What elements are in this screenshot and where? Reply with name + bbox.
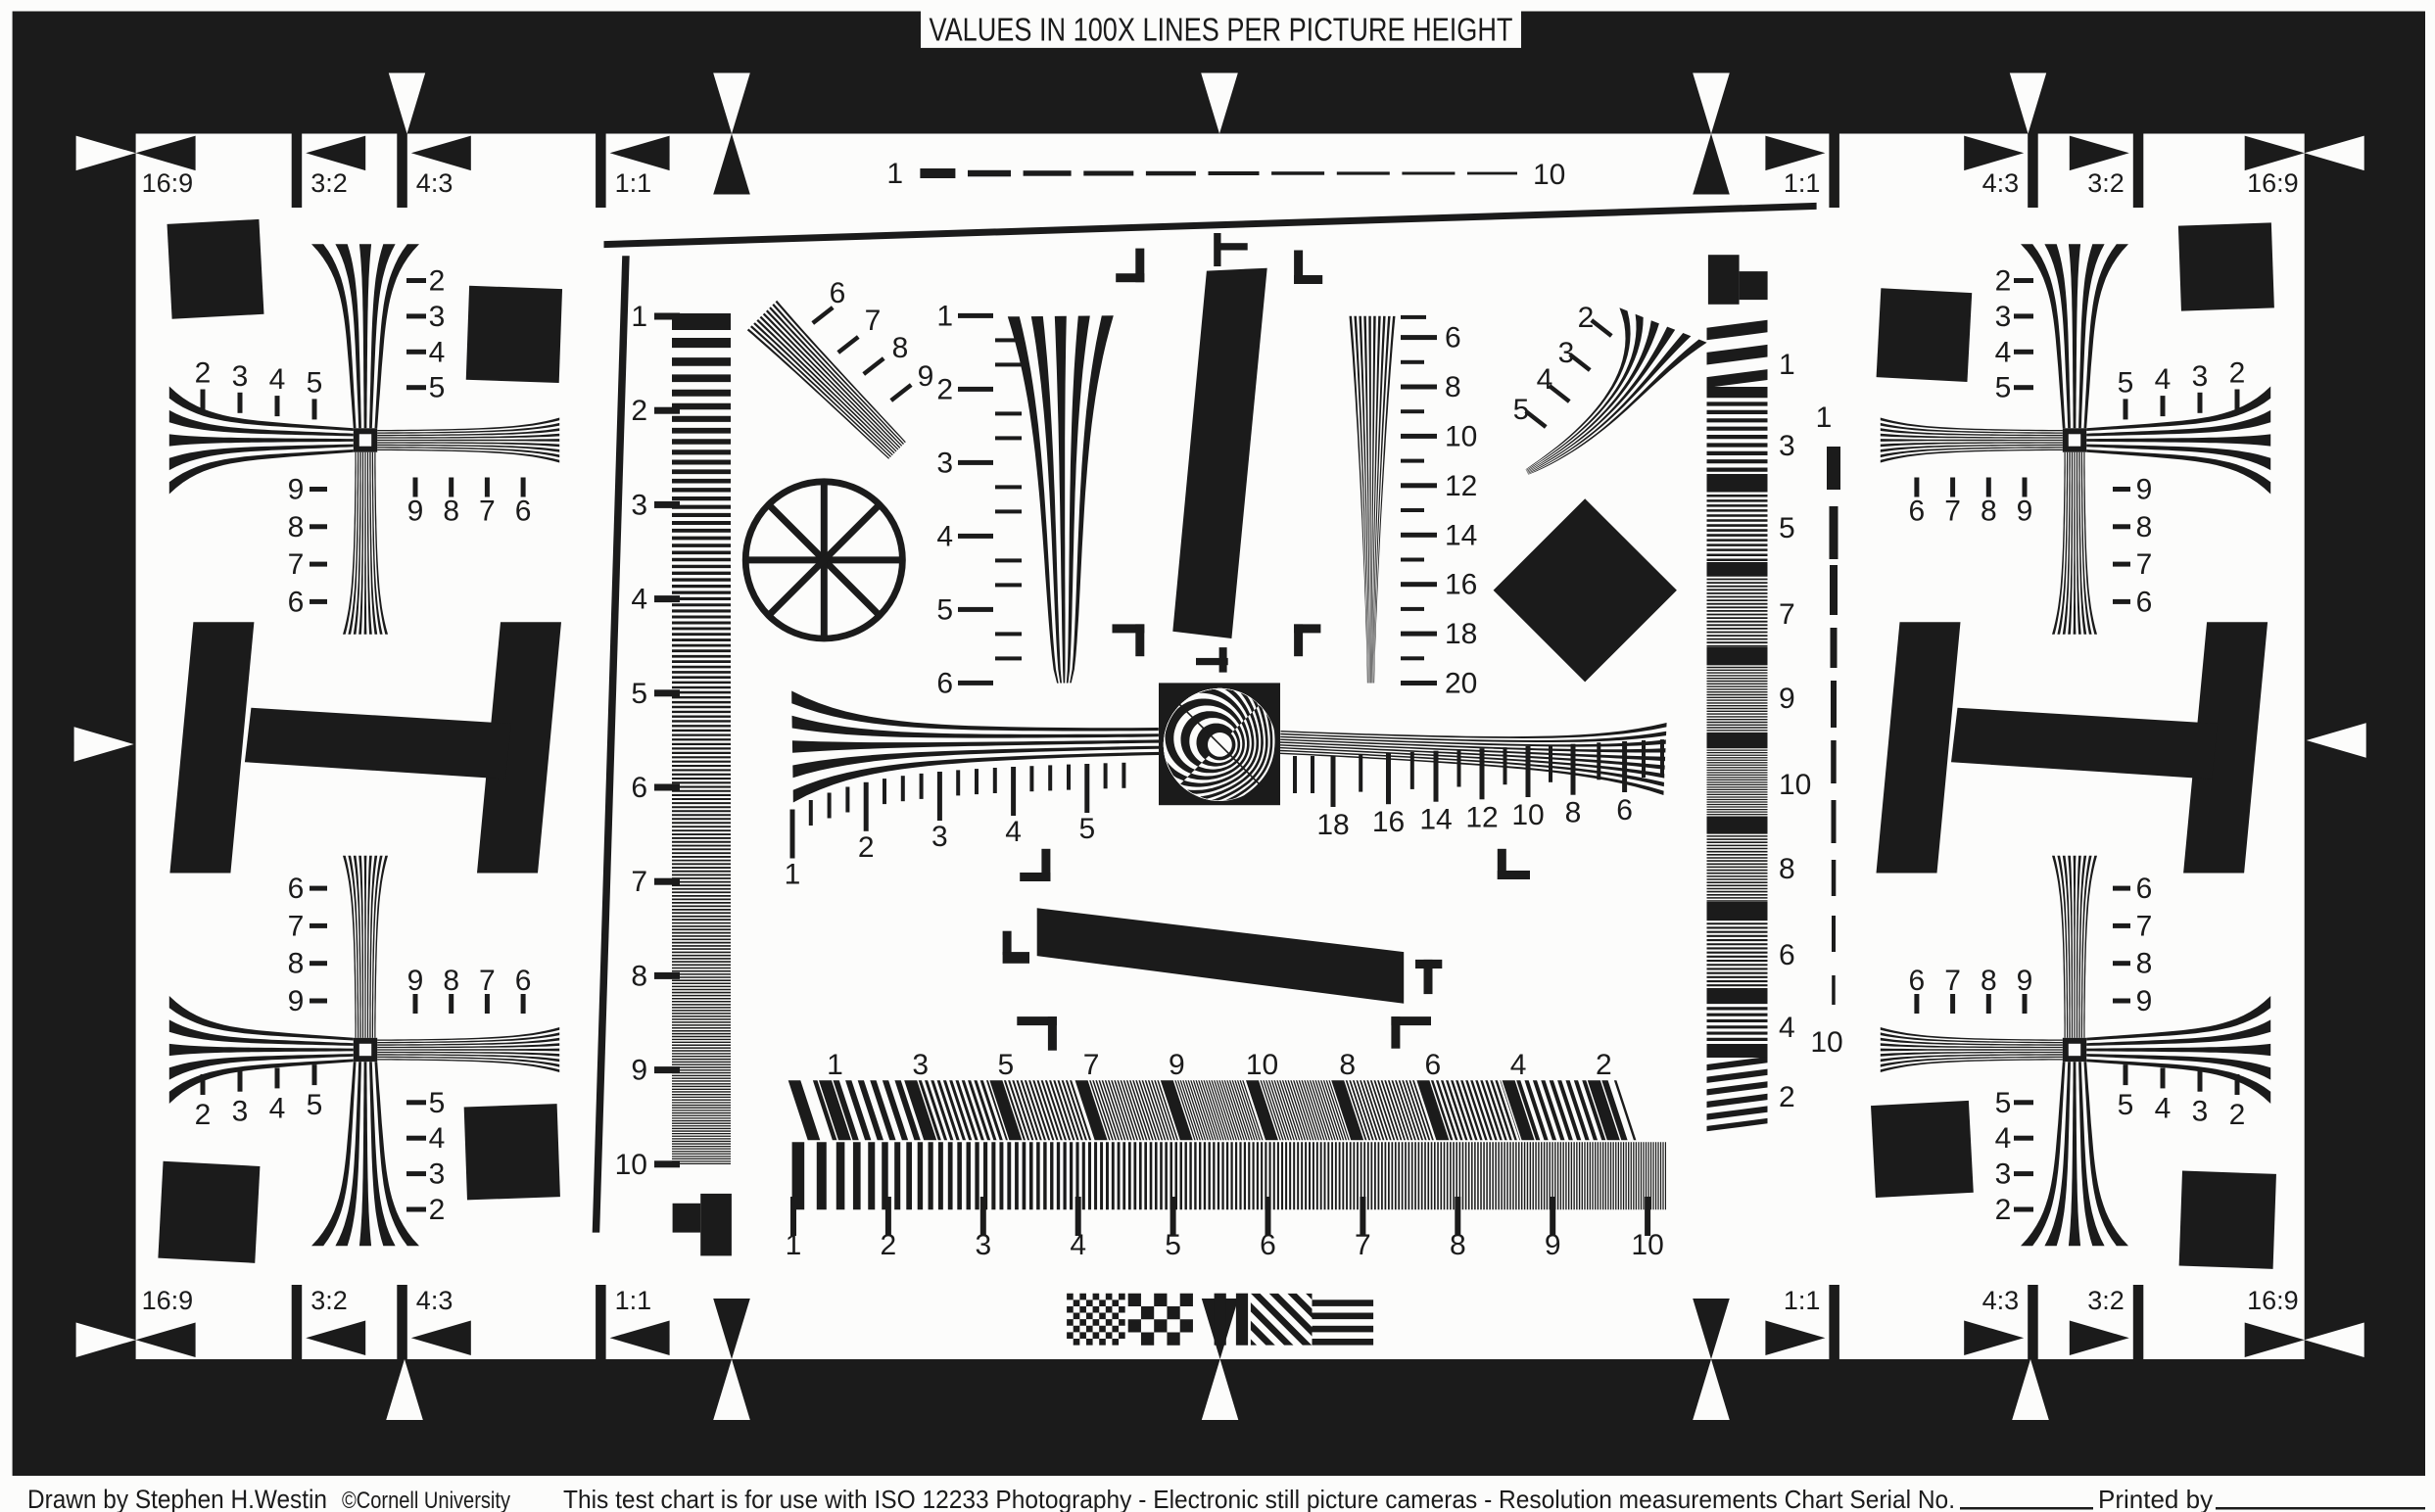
svg-text:4: 4 bbox=[2155, 1092, 2172, 1124]
svg-text:5: 5 bbox=[936, 593, 953, 626]
svg-text:2: 2 bbox=[631, 395, 647, 427]
svg-text:4:3: 4:3 bbox=[1982, 1286, 2020, 1315]
svg-text:4:3: 4:3 bbox=[416, 168, 454, 198]
svg-text:3: 3 bbox=[1558, 337, 1575, 369]
svg-text:10: 10 bbox=[1631, 1229, 1663, 1261]
svg-text:9: 9 bbox=[1779, 683, 1795, 715]
svg-text:3: 3 bbox=[936, 447, 953, 479]
svg-text:9: 9 bbox=[2017, 965, 2033, 997]
svg-text:4: 4 bbox=[936, 520, 953, 552]
svg-text:6: 6 bbox=[1616, 794, 1633, 827]
svg-text:14: 14 bbox=[1445, 519, 1477, 551]
svg-text:10: 10 bbox=[1779, 769, 1811, 801]
svg-text:1: 1 bbox=[827, 1049, 843, 1081]
svg-text:3: 3 bbox=[232, 1096, 249, 1128]
svg-text:2: 2 bbox=[195, 1099, 212, 1131]
svg-text:16:9: 16:9 bbox=[2247, 168, 2299, 198]
svg-text:7: 7 bbox=[1355, 1229, 1371, 1261]
svg-text:8: 8 bbox=[2136, 511, 2153, 543]
svg-text:5: 5 bbox=[1078, 813, 1095, 845]
svg-text:4: 4 bbox=[1510, 1049, 1527, 1081]
svg-text:4: 4 bbox=[269, 363, 286, 396]
svg-text:4:3: 4:3 bbox=[1982, 168, 2020, 198]
svg-text:1: 1 bbox=[786, 1229, 802, 1261]
svg-text:9: 9 bbox=[1169, 1049, 1185, 1081]
svg-text:5: 5 bbox=[2118, 1089, 2134, 1121]
svg-text:6: 6 bbox=[936, 667, 953, 699]
svg-text:2: 2 bbox=[2229, 1099, 2246, 1131]
svg-text:This test chart is for use wit: This test chart is for use with ISO 1223… bbox=[563, 1485, 1955, 1512]
svg-text:7: 7 bbox=[631, 866, 647, 898]
svg-text:6: 6 bbox=[288, 586, 305, 618]
svg-text:3: 3 bbox=[631, 489, 647, 521]
svg-text:3:2: 3:2 bbox=[2087, 168, 2125, 198]
svg-text:7: 7 bbox=[1779, 598, 1795, 631]
svg-text:7: 7 bbox=[865, 305, 882, 337]
svg-text:6: 6 bbox=[1445, 322, 1461, 354]
svg-text:14: 14 bbox=[1419, 804, 1452, 836]
svg-text:1:1: 1:1 bbox=[1784, 1286, 1821, 1315]
svg-text:5: 5 bbox=[998, 1049, 1015, 1081]
svg-text:1: 1 bbox=[785, 859, 801, 891]
svg-text:©Cornell University: ©Cornell University bbox=[342, 1488, 510, 1512]
svg-text:3: 3 bbox=[931, 821, 948, 853]
svg-text:6: 6 bbox=[1779, 939, 1795, 971]
svg-text:7: 7 bbox=[479, 496, 496, 528]
svg-text:8: 8 bbox=[288, 511, 305, 543]
svg-text:6: 6 bbox=[288, 873, 305, 905]
svg-text:8: 8 bbox=[1450, 1229, 1466, 1261]
svg-text:3: 3 bbox=[1995, 1158, 2012, 1191]
svg-text:16:9: 16:9 bbox=[142, 1286, 194, 1315]
svg-text:3: 3 bbox=[429, 301, 446, 333]
svg-text:5: 5 bbox=[2118, 366, 2134, 399]
svg-text:4: 4 bbox=[1995, 1122, 2012, 1155]
svg-text:20: 20 bbox=[1445, 668, 1477, 700]
svg-text:3: 3 bbox=[912, 1049, 929, 1081]
svg-text:9: 9 bbox=[631, 1055, 647, 1087]
svg-text:7: 7 bbox=[2136, 910, 2153, 942]
svg-text:7: 7 bbox=[1944, 496, 1961, 528]
svg-text:8: 8 bbox=[631, 960, 647, 992]
svg-text:6: 6 bbox=[631, 772, 647, 804]
svg-text:1: 1 bbox=[631, 301, 647, 333]
svg-text:5: 5 bbox=[1995, 372, 2012, 404]
svg-text:2: 2 bbox=[1995, 1194, 2012, 1226]
svg-text:6: 6 bbox=[515, 965, 532, 997]
svg-text:5: 5 bbox=[1779, 512, 1795, 544]
svg-text:4: 4 bbox=[429, 336, 446, 368]
svg-text:5: 5 bbox=[429, 1087, 446, 1119]
svg-text:7: 7 bbox=[288, 910, 305, 942]
svg-text:10: 10 bbox=[1511, 799, 1544, 831]
svg-text:4: 4 bbox=[269, 1092, 286, 1124]
svg-text:4: 4 bbox=[1779, 1012, 1795, 1044]
svg-text:6: 6 bbox=[1909, 965, 1926, 997]
svg-text:3: 3 bbox=[429, 1158, 446, 1191]
svg-text:10: 10 bbox=[1445, 420, 1477, 452]
svg-text:6: 6 bbox=[1260, 1229, 1276, 1261]
svg-text:3: 3 bbox=[1779, 430, 1795, 462]
svg-text:7: 7 bbox=[1083, 1049, 1100, 1081]
svg-text:6: 6 bbox=[1909, 496, 1926, 528]
svg-text:4: 4 bbox=[1995, 336, 2012, 368]
svg-text:18: 18 bbox=[1445, 618, 1477, 650]
svg-text:3: 3 bbox=[975, 1229, 991, 1261]
svg-text:12: 12 bbox=[1445, 470, 1477, 502]
svg-text:6: 6 bbox=[2136, 873, 2153, 905]
svg-text:5: 5 bbox=[429, 372, 446, 404]
svg-text:8: 8 bbox=[1981, 965, 1997, 997]
svg-text:3: 3 bbox=[1995, 301, 2012, 333]
svg-text:2: 2 bbox=[2229, 357, 2246, 390]
svg-text:16:9: 16:9 bbox=[142, 168, 194, 198]
svg-text:6: 6 bbox=[2136, 586, 2153, 618]
svg-text:1:1: 1:1 bbox=[1784, 168, 1821, 198]
svg-text:4: 4 bbox=[2155, 363, 2172, 396]
svg-text:10: 10 bbox=[615, 1149, 647, 1181]
svg-text:1:1: 1:1 bbox=[615, 168, 652, 198]
svg-text:2: 2 bbox=[881, 1229, 897, 1261]
svg-text:VALUES IN 100X LINES PER PICTU: VALUES IN 100X LINES PER PICTURE HEIGHT bbox=[930, 12, 1513, 48]
svg-text:5: 5 bbox=[1513, 394, 1530, 426]
svg-text:1: 1 bbox=[886, 158, 903, 190]
svg-text:9: 9 bbox=[918, 360, 934, 393]
svg-text:2: 2 bbox=[429, 1194, 446, 1226]
svg-text:2: 2 bbox=[195, 357, 212, 390]
svg-text:4: 4 bbox=[631, 584, 647, 616]
svg-text:3:2: 3:2 bbox=[310, 1286, 348, 1315]
svg-text:9: 9 bbox=[2136, 985, 2153, 1017]
svg-text:1: 1 bbox=[1816, 402, 1833, 434]
svg-text:4: 4 bbox=[1070, 1229, 1086, 1261]
svg-text:18: 18 bbox=[1316, 809, 1349, 841]
svg-text:4: 4 bbox=[1005, 816, 1022, 848]
svg-text:9: 9 bbox=[1545, 1229, 1561, 1261]
svg-text:8: 8 bbox=[288, 948, 305, 980]
svg-text:3: 3 bbox=[232, 360, 249, 393]
svg-text:10: 10 bbox=[1810, 1026, 1842, 1059]
svg-text:7: 7 bbox=[1944, 965, 1961, 997]
svg-text:4:3: 4:3 bbox=[416, 1286, 454, 1315]
svg-text:4: 4 bbox=[1537, 363, 1553, 396]
svg-text:3: 3 bbox=[2192, 360, 2209, 393]
svg-text:5: 5 bbox=[1165, 1229, 1181, 1261]
svg-text:5: 5 bbox=[1995, 1087, 2012, 1119]
svg-text:8: 8 bbox=[443, 965, 459, 997]
svg-text:6: 6 bbox=[515, 496, 532, 528]
svg-text:2: 2 bbox=[1578, 302, 1595, 334]
svg-text:8: 8 bbox=[1565, 797, 1582, 829]
svg-text:6: 6 bbox=[830, 277, 846, 309]
svg-text:3:2: 3:2 bbox=[2087, 1286, 2125, 1315]
svg-text:8: 8 bbox=[1445, 371, 1461, 403]
svg-text:7: 7 bbox=[479, 965, 496, 997]
svg-text:16: 16 bbox=[1372, 806, 1405, 838]
svg-text:8: 8 bbox=[1339, 1049, 1356, 1081]
svg-text:1:1: 1:1 bbox=[615, 1286, 652, 1315]
svg-text:2: 2 bbox=[1596, 1049, 1612, 1081]
svg-text:8: 8 bbox=[1779, 853, 1795, 885]
svg-text:3: 3 bbox=[2192, 1096, 2209, 1128]
svg-text:2: 2 bbox=[936, 373, 953, 405]
svg-text:5: 5 bbox=[307, 1089, 323, 1121]
svg-text:10: 10 bbox=[1533, 159, 1565, 191]
svg-text:2: 2 bbox=[429, 265, 446, 298]
svg-text:1: 1 bbox=[1779, 349, 1795, 381]
svg-text:5: 5 bbox=[307, 366, 323, 399]
svg-text:10: 10 bbox=[1246, 1049, 1278, 1081]
svg-text:9: 9 bbox=[407, 496, 424, 528]
svg-text:9: 9 bbox=[2136, 474, 2153, 506]
svg-text:8: 8 bbox=[892, 332, 909, 364]
svg-text:Drawn by Stephen H.Westin: Drawn by Stephen H.Westin bbox=[27, 1485, 327, 1512]
svg-text:4: 4 bbox=[429, 1122, 446, 1155]
svg-text:8: 8 bbox=[2136, 948, 2153, 980]
svg-text:1: 1 bbox=[936, 300, 953, 332]
svg-text:8: 8 bbox=[1981, 496, 1997, 528]
svg-text:5: 5 bbox=[631, 678, 647, 710]
svg-text:9: 9 bbox=[288, 985, 305, 1017]
svg-text:3:2: 3:2 bbox=[310, 168, 348, 198]
svg-text:2: 2 bbox=[1779, 1081, 1795, 1113]
svg-text:9: 9 bbox=[407, 965, 424, 997]
svg-text:12: 12 bbox=[1465, 801, 1498, 833]
svg-text:7: 7 bbox=[288, 548, 305, 581]
svg-text:16: 16 bbox=[1445, 569, 1477, 601]
svg-text:2: 2 bbox=[1995, 265, 2012, 298]
svg-text:2: 2 bbox=[858, 831, 875, 864]
svg-text:6: 6 bbox=[1425, 1049, 1442, 1081]
svg-text:7: 7 bbox=[2136, 548, 2153, 581]
svg-text:Printed by: Printed by bbox=[2098, 1485, 2213, 1512]
svg-text:9: 9 bbox=[288, 474, 305, 506]
svg-text:9: 9 bbox=[2017, 496, 2033, 528]
svg-text:8: 8 bbox=[443, 496, 459, 528]
svg-text:16:9: 16:9 bbox=[2247, 1286, 2299, 1315]
